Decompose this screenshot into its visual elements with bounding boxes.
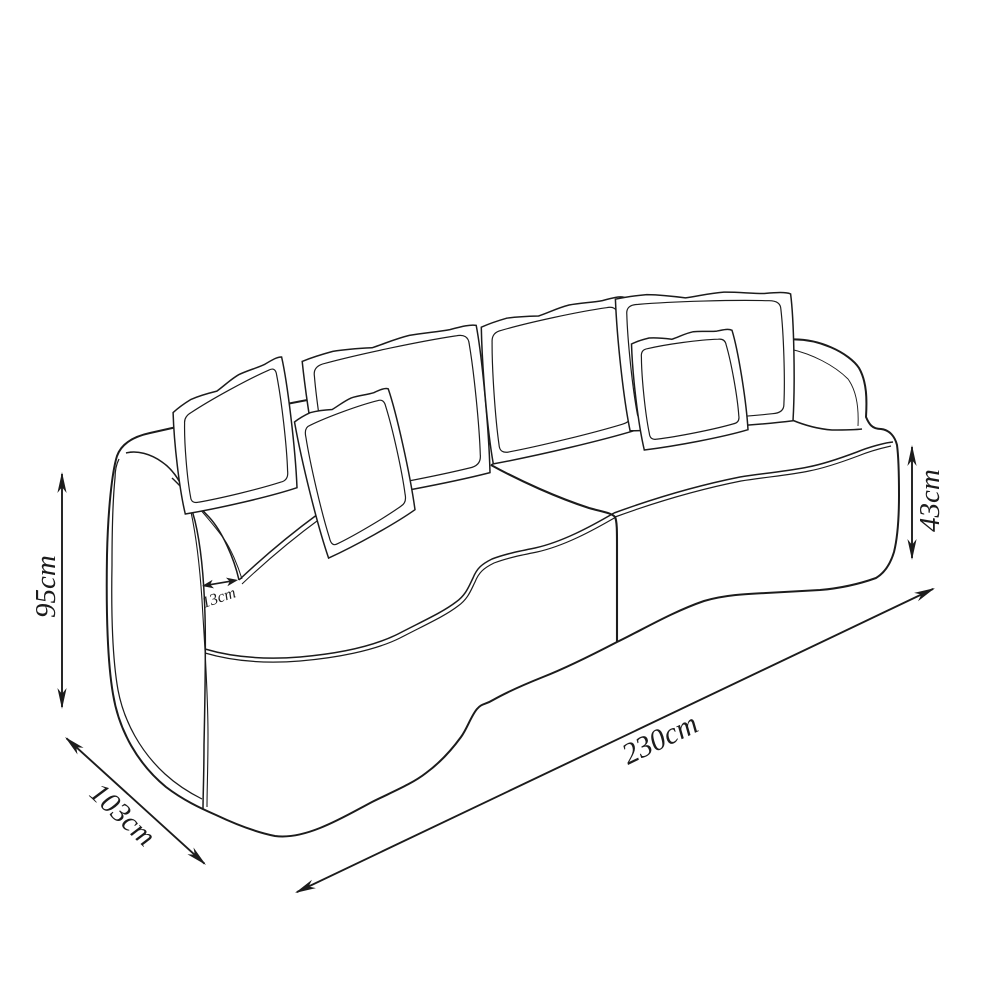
- svg-text:43cm: 43cm: [914, 469, 946, 532]
- svg-text:95cm: 95cm: [30, 555, 62, 618]
